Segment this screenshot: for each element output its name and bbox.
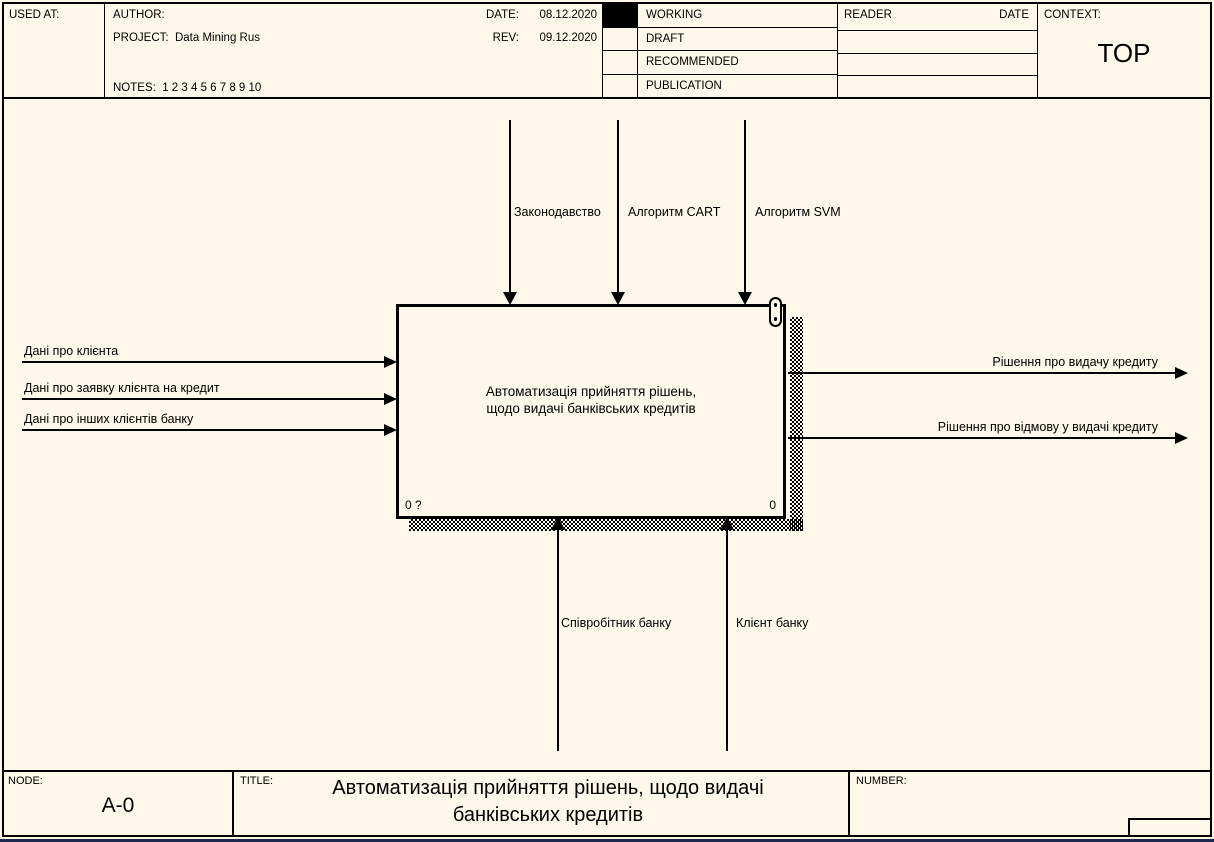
context-value: TOP xyxy=(1038,38,1210,69)
status-checkbox-column xyxy=(602,4,637,97)
output-label-1: Рішення про видачу кредиту xyxy=(992,355,1158,369)
node-value: A-0 xyxy=(4,794,232,818)
arrowhead-down-icon xyxy=(738,292,752,305)
idef0-diagram-sheet: { "header": { "used_at_label": "USED AT:… xyxy=(0,0,1214,842)
arrowhead-right-icon xyxy=(384,393,397,405)
arrowhead-right-icon xyxy=(1175,367,1188,379)
diagram-title: Автоматизація прийняття рішень, щодо вид… xyxy=(234,772,848,829)
page-number-box xyxy=(1128,818,1212,836)
box-node-number-left: 0 ? xyxy=(405,498,422,512)
input-label-3: Дані про інших клієнтів банку xyxy=(24,412,193,426)
rev-label: REV: xyxy=(493,32,519,44)
arrowhead-up-icon xyxy=(720,517,734,530)
node-cell: NODE: A-0 xyxy=(4,772,232,836)
node-label: NODE: xyxy=(8,775,43,787)
author-label: AUTHOR: xyxy=(113,9,165,21)
notes-value: 1 2 3 4 5 6 7 8 9 10 xyxy=(162,82,261,94)
arrowhead-right-icon xyxy=(384,424,397,436)
status-label-column: WORKING DRAFT RECOMMENDED PUBLICATION xyxy=(637,4,837,97)
box-shadow-bottom xyxy=(409,519,803,531)
notes-label: NOTES: xyxy=(113,82,156,94)
number-label: NUMBER: xyxy=(856,775,907,787)
activity-title-line1: Автоматизація прийняття рішень, xyxy=(399,383,783,400)
number-cell: NUMBER: xyxy=(848,772,1210,836)
activity-box-title: Автоматизація прийняття рішень, щодо вид… xyxy=(399,307,783,417)
activity-title-line2: щодо видачі банківських кредитів xyxy=(399,400,783,417)
context-cell: CONTEXT: TOP xyxy=(1037,4,1210,97)
used-at-label: USED AT: xyxy=(4,4,104,21)
mechanism-label-1: Співробітник банку xyxy=(561,616,671,630)
status-draft-label: DRAFT xyxy=(638,28,837,52)
title-label: TITLE: xyxy=(240,775,273,787)
reader-row-empty-2 xyxy=(838,54,1037,76)
control-label-1: Законодавство xyxy=(514,205,601,219)
mechanism-label-2: Клієнт банку xyxy=(736,616,808,630)
project-label: PROJECT: xyxy=(113,32,169,44)
rev-row: REV: 09.12.2020 xyxy=(493,32,597,44)
box-node-number-right: 0 xyxy=(769,498,776,512)
context-label: CONTEXT: xyxy=(1044,9,1101,21)
rev-value: 09.12.2020 xyxy=(519,32,597,44)
reader-row-empty-1 xyxy=(838,31,1037,53)
status-checkbox-recommended[interactable] xyxy=(603,51,637,75)
date-value: 08.12.2020 xyxy=(519,9,597,21)
header-kit: USED AT: AUTHOR: PROJECT: Data Mining Ru… xyxy=(4,4,1210,99)
date-row: DATE: 08.12.2020 xyxy=(486,9,597,21)
arrowhead-right-icon xyxy=(1175,432,1188,444)
reader-header-row: READER DATE xyxy=(838,4,1037,31)
input-label-1: Дані про клієнта xyxy=(24,344,118,358)
notes-row: NOTES: 1 2 3 4 5 6 7 8 9 10 xyxy=(113,82,261,94)
used-at-cell: USED AT: xyxy=(4,4,104,97)
output-label-2: Рішення про відмову у видачі кредиту xyxy=(938,420,1158,434)
reader-row-empty-3 xyxy=(838,76,1037,97)
footer-kit: NODE: A-0 TITLE: Автоматизація прийняття… xyxy=(4,770,1210,836)
control-label-2: Алгоритм CART xyxy=(628,205,720,219)
reader-column: READER DATE xyxy=(837,4,1037,97)
date-label: DATE: xyxy=(486,9,519,21)
page-flip-icon[interactable] xyxy=(769,297,782,327)
title-cell: TITLE: Автоматизація прийняття рішень, щ… xyxy=(232,772,848,836)
status-checkbox-publication[interactable] xyxy=(603,75,637,98)
status-checkbox-draft[interactable] xyxy=(603,28,637,52)
project-row: PROJECT: Data Mining Rus xyxy=(113,32,260,44)
input-label-2: Дані про заявку клієнта на кредит xyxy=(24,381,220,395)
arrowhead-down-icon xyxy=(611,292,625,305)
reader-label: READER xyxy=(844,9,892,30)
status-checkbox-working[interactable] xyxy=(603,4,637,28)
arrowhead-right-icon xyxy=(384,356,397,368)
box-shadow-right xyxy=(790,317,803,531)
author-cell: AUTHOR: PROJECT: Data Mining Rus NOTES: … xyxy=(104,4,602,97)
status-publication-label: PUBLICATION xyxy=(638,75,837,98)
status-working-label: WORKING xyxy=(638,4,837,28)
arrowhead-up-icon xyxy=(551,517,565,530)
arrowhead-down-icon xyxy=(503,292,517,305)
project-value: Data Mining Rus xyxy=(175,32,260,44)
control-label-3: Алгоритм SVM xyxy=(755,205,841,219)
status-recommended-label: RECOMMENDED xyxy=(638,51,837,75)
activity-box-a0[interactable]: Автоматизація прийняття рішень, щодо вид… xyxy=(396,304,786,519)
reader-date-label: DATE xyxy=(999,9,1029,30)
